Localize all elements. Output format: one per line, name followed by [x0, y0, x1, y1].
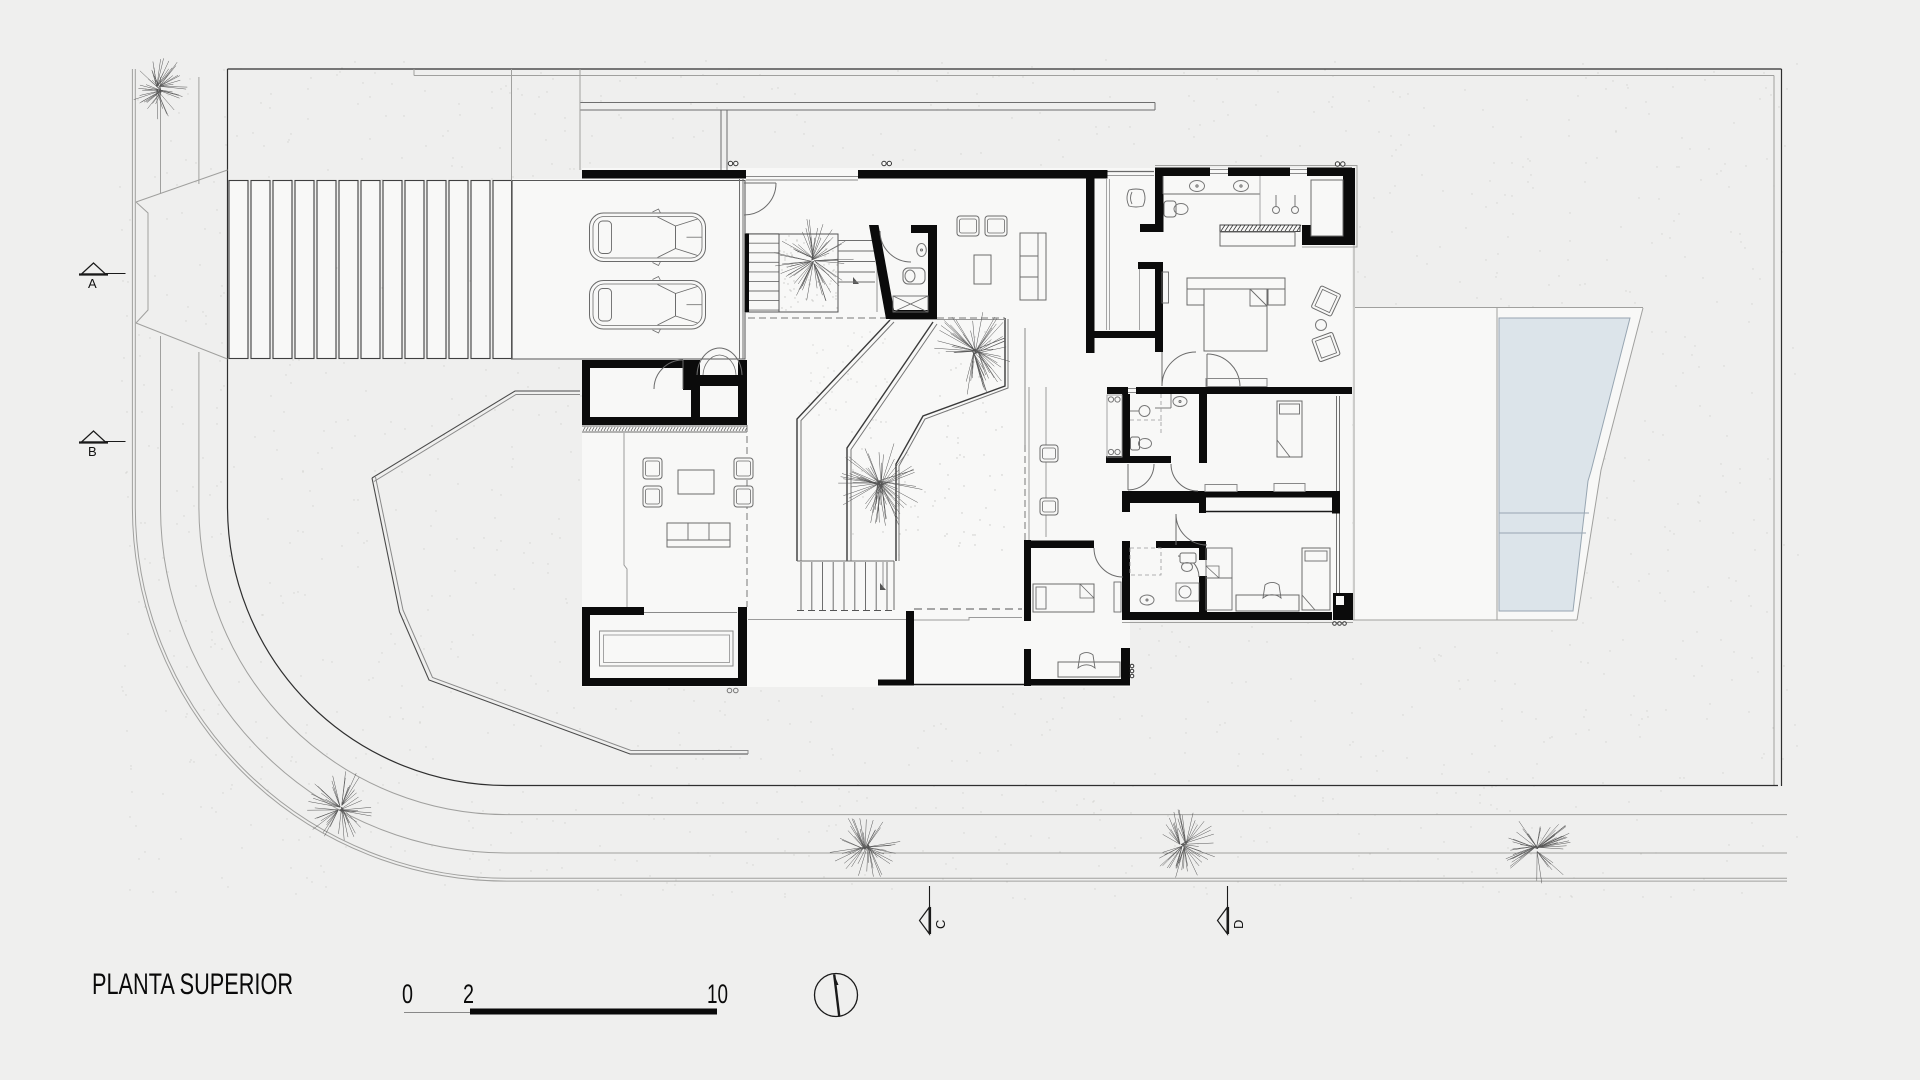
svg-text:B: B — [88, 444, 97, 459]
svg-text:PLANTA SUPERIOR: PLANTA SUPERIOR — [92, 968, 293, 1001]
svg-text:10: 10 — [707, 979, 728, 1009]
svg-text:C: C — [933, 920, 948, 929]
svg-text:A: A — [88, 276, 97, 291]
svg-text:0: 0 — [402, 979, 413, 1009]
svg-text:2: 2 — [463, 979, 474, 1009]
svg-text:D: D — [1231, 920, 1246, 929]
